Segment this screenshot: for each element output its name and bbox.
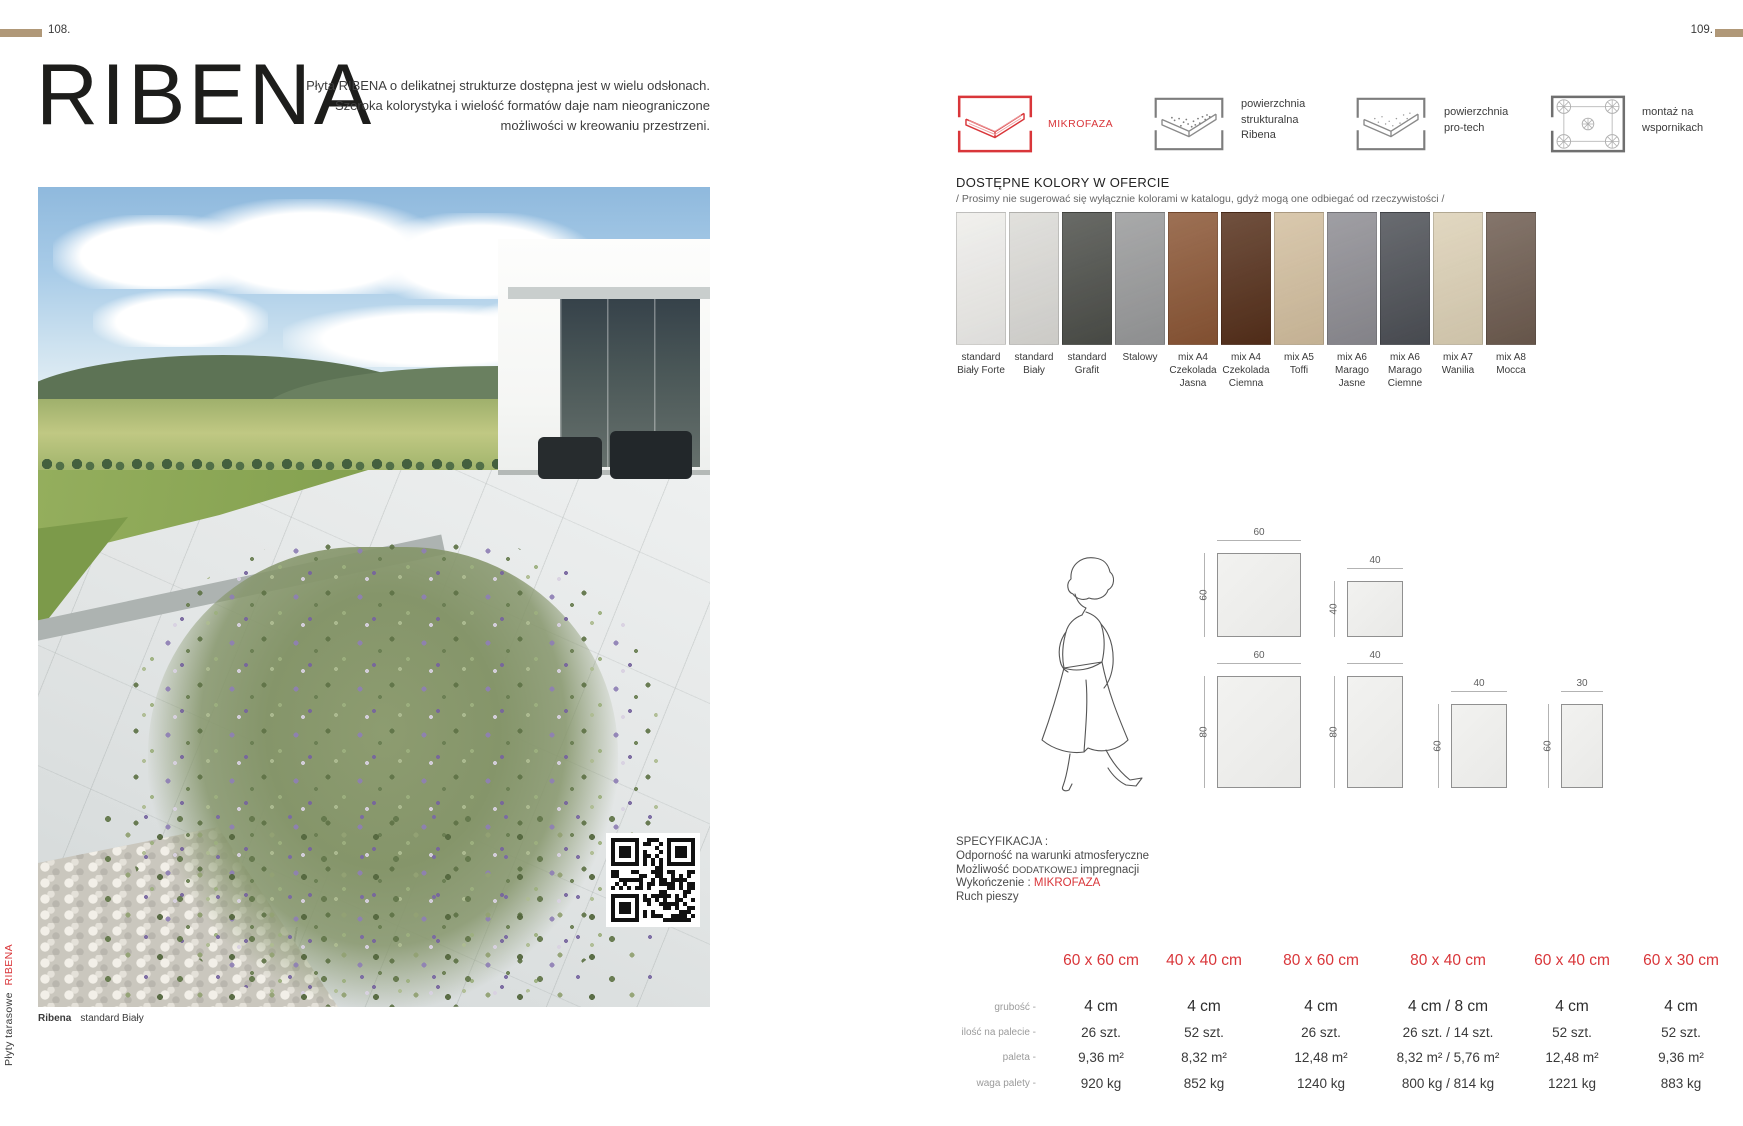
size-dim-top-label: 30 — [1561, 678, 1603, 689]
spec-line: Wykończenie : MIKROFAZA — [956, 877, 1149, 891]
swatch-label: mix A7Wanilia — [1433, 352, 1483, 378]
mikrofaza-icon — [956, 94, 1034, 154]
swatch-label-line: Jasna — [1168, 378, 1218, 391]
left-page-marker-bar — [0, 29, 42, 37]
swatch-label-line: Biały Forte — [956, 365, 1006, 378]
size-dim-side-label: 60 — [1433, 740, 1444, 751]
swatch-label: standardBiały — [1009, 352, 1059, 378]
size-dim-top: 40 — [1451, 691, 1507, 692]
table-value-cell: 52 szt. — [1154, 1025, 1254, 1040]
table-value-cell: 12,48 m² — [1254, 1050, 1388, 1065]
size-dim-side: 80 — [1334, 676, 1335, 788]
feature-label-line: wspornikach — [1642, 121, 1703, 137]
colors-note: / Prosimy nie sugerować się wyłącznie ko… — [956, 193, 1444, 205]
table-value-cell: 4 cm — [1048, 998, 1154, 1016]
swatch-color — [1062, 212, 1112, 345]
feature-label: MIKROFAZA — [1048, 117, 1113, 132]
table-value-cell: 4 cm — [1636, 998, 1726, 1016]
color-swatch: mix A4CzekoladaJasna — [1168, 212, 1218, 390]
photo-caption: Ribenastandard Biały — [38, 1013, 144, 1024]
size-dim-side: 80 — [1204, 676, 1205, 788]
spec-line: Odporność na warunki atmosferyczne — [956, 850, 1149, 864]
color-swatch: mix A7Wanilia — [1433, 212, 1483, 390]
color-swatch: Stalowy — [1115, 212, 1165, 390]
side-label-category: Płyty tarasowe — [3, 992, 15, 1066]
swatch-label: mix A4CzekoladaCiemna — [1221, 352, 1271, 390]
swatch-label-line: Czekolada — [1221, 365, 1271, 378]
size-dim-side: 60 — [1438, 704, 1439, 788]
size-dim-top-label: 40 — [1347, 650, 1403, 661]
feature-label: powierzchniapro-tech — [1444, 105, 1508, 136]
qr-code — [606, 833, 700, 927]
swatch-label-line: Grafit — [1062, 365, 1112, 378]
caption-product: Ribena — [38, 1013, 71, 1024]
swatch-label: standardGrafit — [1062, 352, 1112, 378]
size-dim-side-label: 60 — [1543, 740, 1554, 751]
size-dim-side: 60 — [1204, 553, 1205, 637]
table-header-cell: 80 x 60 cm — [1254, 952, 1388, 970]
table-value-cell: 9,36 m² — [1048, 1050, 1154, 1065]
feature-label-line: pro-tech — [1444, 121, 1508, 137]
table-value-cell: 1240 kg — [1254, 1076, 1388, 1091]
table-value-cell: 852 kg — [1154, 1076, 1254, 1091]
table-value-cell: 8,32 m² — [1154, 1050, 1254, 1065]
swatch-label: mix A6MaragoJasne — [1327, 352, 1377, 390]
swatch-label: mix A8Mocca — [1486, 352, 1536, 378]
swatch-color — [1009, 212, 1059, 345]
table-value-cell: 883 kg — [1636, 1076, 1726, 1091]
swatch-label-line: standard — [956, 352, 1006, 365]
feature-label: powierzchniastrukturalnaRibena — [1241, 97, 1305, 144]
swatch-color — [1380, 212, 1430, 345]
size-dim-top-label: 40 — [1451, 678, 1507, 689]
swatch-label: mix A5Toffi — [1274, 352, 1324, 378]
size-dim-top-label: 40 — [1347, 555, 1403, 566]
swatch-label-line: mix A6 — [1380, 352, 1430, 365]
table-value-cell: 920 kg — [1048, 1076, 1154, 1091]
feature-label-line: powierzchnia — [1241, 97, 1305, 113]
swatch-label-line: Ciemna — [1221, 378, 1271, 391]
size-dim-top-label: 60 — [1217, 650, 1301, 661]
swatch-label-line: Marago — [1380, 365, 1430, 378]
swatch-label-line: mix A8 — [1486, 352, 1536, 365]
table-header-cell: 80 x 40 cm — [1388, 952, 1508, 970]
size-dim-side-label: 60 — [1199, 589, 1210, 600]
swatch-color — [1168, 212, 1218, 345]
size-dim-side: 40 — [1334, 581, 1335, 637]
table-header-cell: 60 x 40 cm — [1508, 952, 1636, 970]
specification-table: 60 x 60 cm40 x 40 cm80 x 60 cm80 x 40 cm… — [940, 948, 1726, 1096]
spec-line: Możliwość DODATKOWEJ impregnacji — [956, 864, 1149, 878]
swatch-label-line: Marago — [1327, 365, 1377, 378]
swatch-label-line: mix A4 — [1221, 352, 1271, 365]
spec-heading: SPECYFIKACJA : — [956, 836, 1149, 850]
cloud — [93, 291, 268, 347]
table-row-label: waga palety - — [940, 1078, 1048, 1089]
table-value-cell: 12,48 m² — [1508, 1050, 1636, 1065]
right-page-marker-bar — [1715, 29, 1743, 37]
table-row-label: grubość - — [940, 1002, 1048, 1013]
swatch-label-line: Jasne — [1327, 378, 1377, 391]
feature-label-line: strukturalna — [1241, 113, 1305, 129]
specification-block: SPECYFIKACJA : Odporność na warunki atmo… — [956, 836, 1149, 905]
size-dim-top: 60 — [1217, 540, 1301, 541]
size-dim-side: 60 — [1548, 704, 1549, 788]
size-dim-side-label: 80 — [1199, 726, 1210, 737]
table-header-cell: 60 x 30 cm — [1636, 952, 1726, 970]
swatch-label-line: Biały — [1009, 365, 1059, 378]
swatch-color — [1433, 212, 1483, 345]
swatch-label-line: mix A5 — [1274, 352, 1324, 365]
size-dim-top: 60 — [1217, 663, 1301, 664]
table-value-cell: 26 szt. / 14 szt. — [1388, 1025, 1508, 1040]
table-value-cell: 1221 kg — [1508, 1076, 1636, 1091]
size-rect — [1347, 676, 1403, 788]
swatch-label-line: mix A7 — [1433, 352, 1483, 365]
swatch-label-line: Ciemne — [1380, 378, 1430, 391]
size-dim-side-label: 80 — [1329, 726, 1340, 737]
size-dim-top-label: 60 — [1217, 527, 1301, 538]
left-page-number: 108. — [48, 24, 70, 36]
table-value-cell: 52 szt. — [1636, 1025, 1726, 1040]
swatch-color — [1486, 212, 1536, 345]
swatch-label-line: mix A4 — [1168, 352, 1218, 365]
table-value-cell: 4 cm / 8 cm — [1388, 998, 1508, 1016]
feature-label: montaż nawspornikach — [1642, 105, 1703, 136]
feature-label-line: Ribena — [1241, 128, 1305, 144]
table-row-label: paleta - — [940, 1052, 1048, 1063]
spec-line: Ruch pieszy — [956, 891, 1149, 905]
swatch-label-line: Stalowy — [1115, 352, 1165, 365]
swatch-color — [1274, 212, 1324, 345]
swatch-color — [1221, 212, 1271, 345]
catalog-spread: 108. 109. RIBENA Płyta RIBENA o delikatn… — [0, 0, 1743, 1126]
size-rect — [1451, 704, 1507, 788]
color-swatch: standardBiały — [1009, 212, 1059, 390]
table-value-cell: 4 cm — [1154, 998, 1254, 1016]
structural-surface-icon — [1153, 94, 1225, 154]
color-swatch: standardGrafit — [1062, 212, 1112, 390]
swatch-label-line: Toffi — [1274, 365, 1324, 378]
table-value-cell: 26 szt. — [1254, 1025, 1388, 1040]
table-value-cell: 800 kg / 814 kg — [1388, 1076, 1508, 1091]
feature-label-line: powierzchnia — [1444, 105, 1508, 121]
side-vertical-label: Płyty tarasowe RIBENA — [3, 898, 15, 1066]
swatch-label: Stalowy — [1115, 352, 1165, 365]
roof-soffit-shadow — [508, 287, 710, 299]
swatch-label: mix A4CzekoladaJasna — [1168, 352, 1218, 390]
swatch-label-line: Wanilia — [1433, 365, 1483, 378]
size-dim-top: 40 — [1347, 568, 1403, 569]
intro-line: możliwości w kreowaniu przestrzeni. — [300, 116, 710, 136]
size-dim-side-label: 40 — [1329, 603, 1340, 614]
table-value-cell: 4 cm — [1508, 998, 1636, 1016]
outdoor-sofa — [538, 437, 602, 479]
feature-label-line: montaż na — [1642, 105, 1703, 121]
feature-label-line: MIKROFAZA — [1048, 117, 1113, 132]
swatch-label-line: standard — [1009, 352, 1059, 365]
right-page-number: 109. — [1691, 24, 1713, 36]
table-value-cell: 8,32 m² / 5,76 m² — [1388, 1050, 1508, 1065]
color-swatch: mix A6MaragoJasne — [1327, 212, 1377, 390]
color-swatch: mix A8Mocca — [1486, 212, 1536, 390]
pro-tech-surface-icon — [1355, 94, 1427, 154]
caption-variant: standard Biały — [80, 1013, 143, 1024]
size-dim-top: 40 — [1347, 663, 1403, 664]
color-swatch: mix A6MaragoCiemne — [1380, 212, 1430, 390]
color-swatch: standardBiały Forte — [956, 212, 1006, 390]
size-rect — [1217, 676, 1301, 788]
size-rect — [1347, 581, 1403, 637]
mikrofaza-finish-label: MIKROFAZA — [1034, 877, 1100, 889]
swatch-color — [956, 212, 1006, 345]
swatch-label: mix A6MaragoCiemne — [1380, 352, 1430, 390]
swatch-label: standardBiały Forte — [956, 352, 1006, 378]
color-swatch: mix A4CzekoladaCiemna — [1221, 212, 1271, 390]
intro-line: Szeroka kolorystyka i wielość formatów d… — [300, 96, 710, 116]
table-header-cell: 60 x 60 cm — [1048, 952, 1154, 970]
size-dim-top: 30 — [1561, 691, 1603, 692]
swatch-label-line: standard — [1062, 352, 1112, 365]
swatch-color — [1115, 212, 1165, 345]
size-rect — [1217, 553, 1301, 637]
table-value-cell: 52 szt. — [1508, 1025, 1636, 1040]
hero-photo — [38, 187, 710, 1007]
swatch-label-line: mix A6 — [1327, 352, 1377, 365]
pedestal-mount-icon — [1548, 94, 1628, 154]
swatch-color — [1327, 212, 1377, 345]
colors-heading: DOSTĘPNE KOLORY W OFERCIE — [956, 175, 1170, 190]
table-value-cell: 4 cm — [1254, 998, 1388, 1016]
color-swatch-row: standardBiały FortestandardBiałystandard… — [956, 212, 1536, 390]
person-figure — [1018, 552, 1168, 792]
table-value-cell: 26 szt. — [1048, 1025, 1154, 1040]
table-header-cell: 40 x 40 cm — [1154, 952, 1254, 970]
table-row-label: ilość na palecie - — [940, 1027, 1048, 1038]
table-value-cell: 9,36 m² — [1636, 1050, 1726, 1065]
swatch-label-line: Mocca — [1486, 365, 1536, 378]
size-rect — [1561, 704, 1603, 788]
side-label-product: RIBENA — [3, 944, 15, 986]
lavender-foliage — [98, 807, 658, 1007]
color-swatch: mix A5Toffi — [1274, 212, 1324, 390]
swatch-label-line: Czekolada — [1168, 365, 1218, 378]
intro-paragraph: Płyta RIBENA o delikatnej strukturze dos… — [300, 76, 710, 136]
outdoor-sofa — [610, 431, 692, 479]
intro-line: Płyta RIBENA o delikatnej strukturze dos… — [300, 76, 710, 96]
